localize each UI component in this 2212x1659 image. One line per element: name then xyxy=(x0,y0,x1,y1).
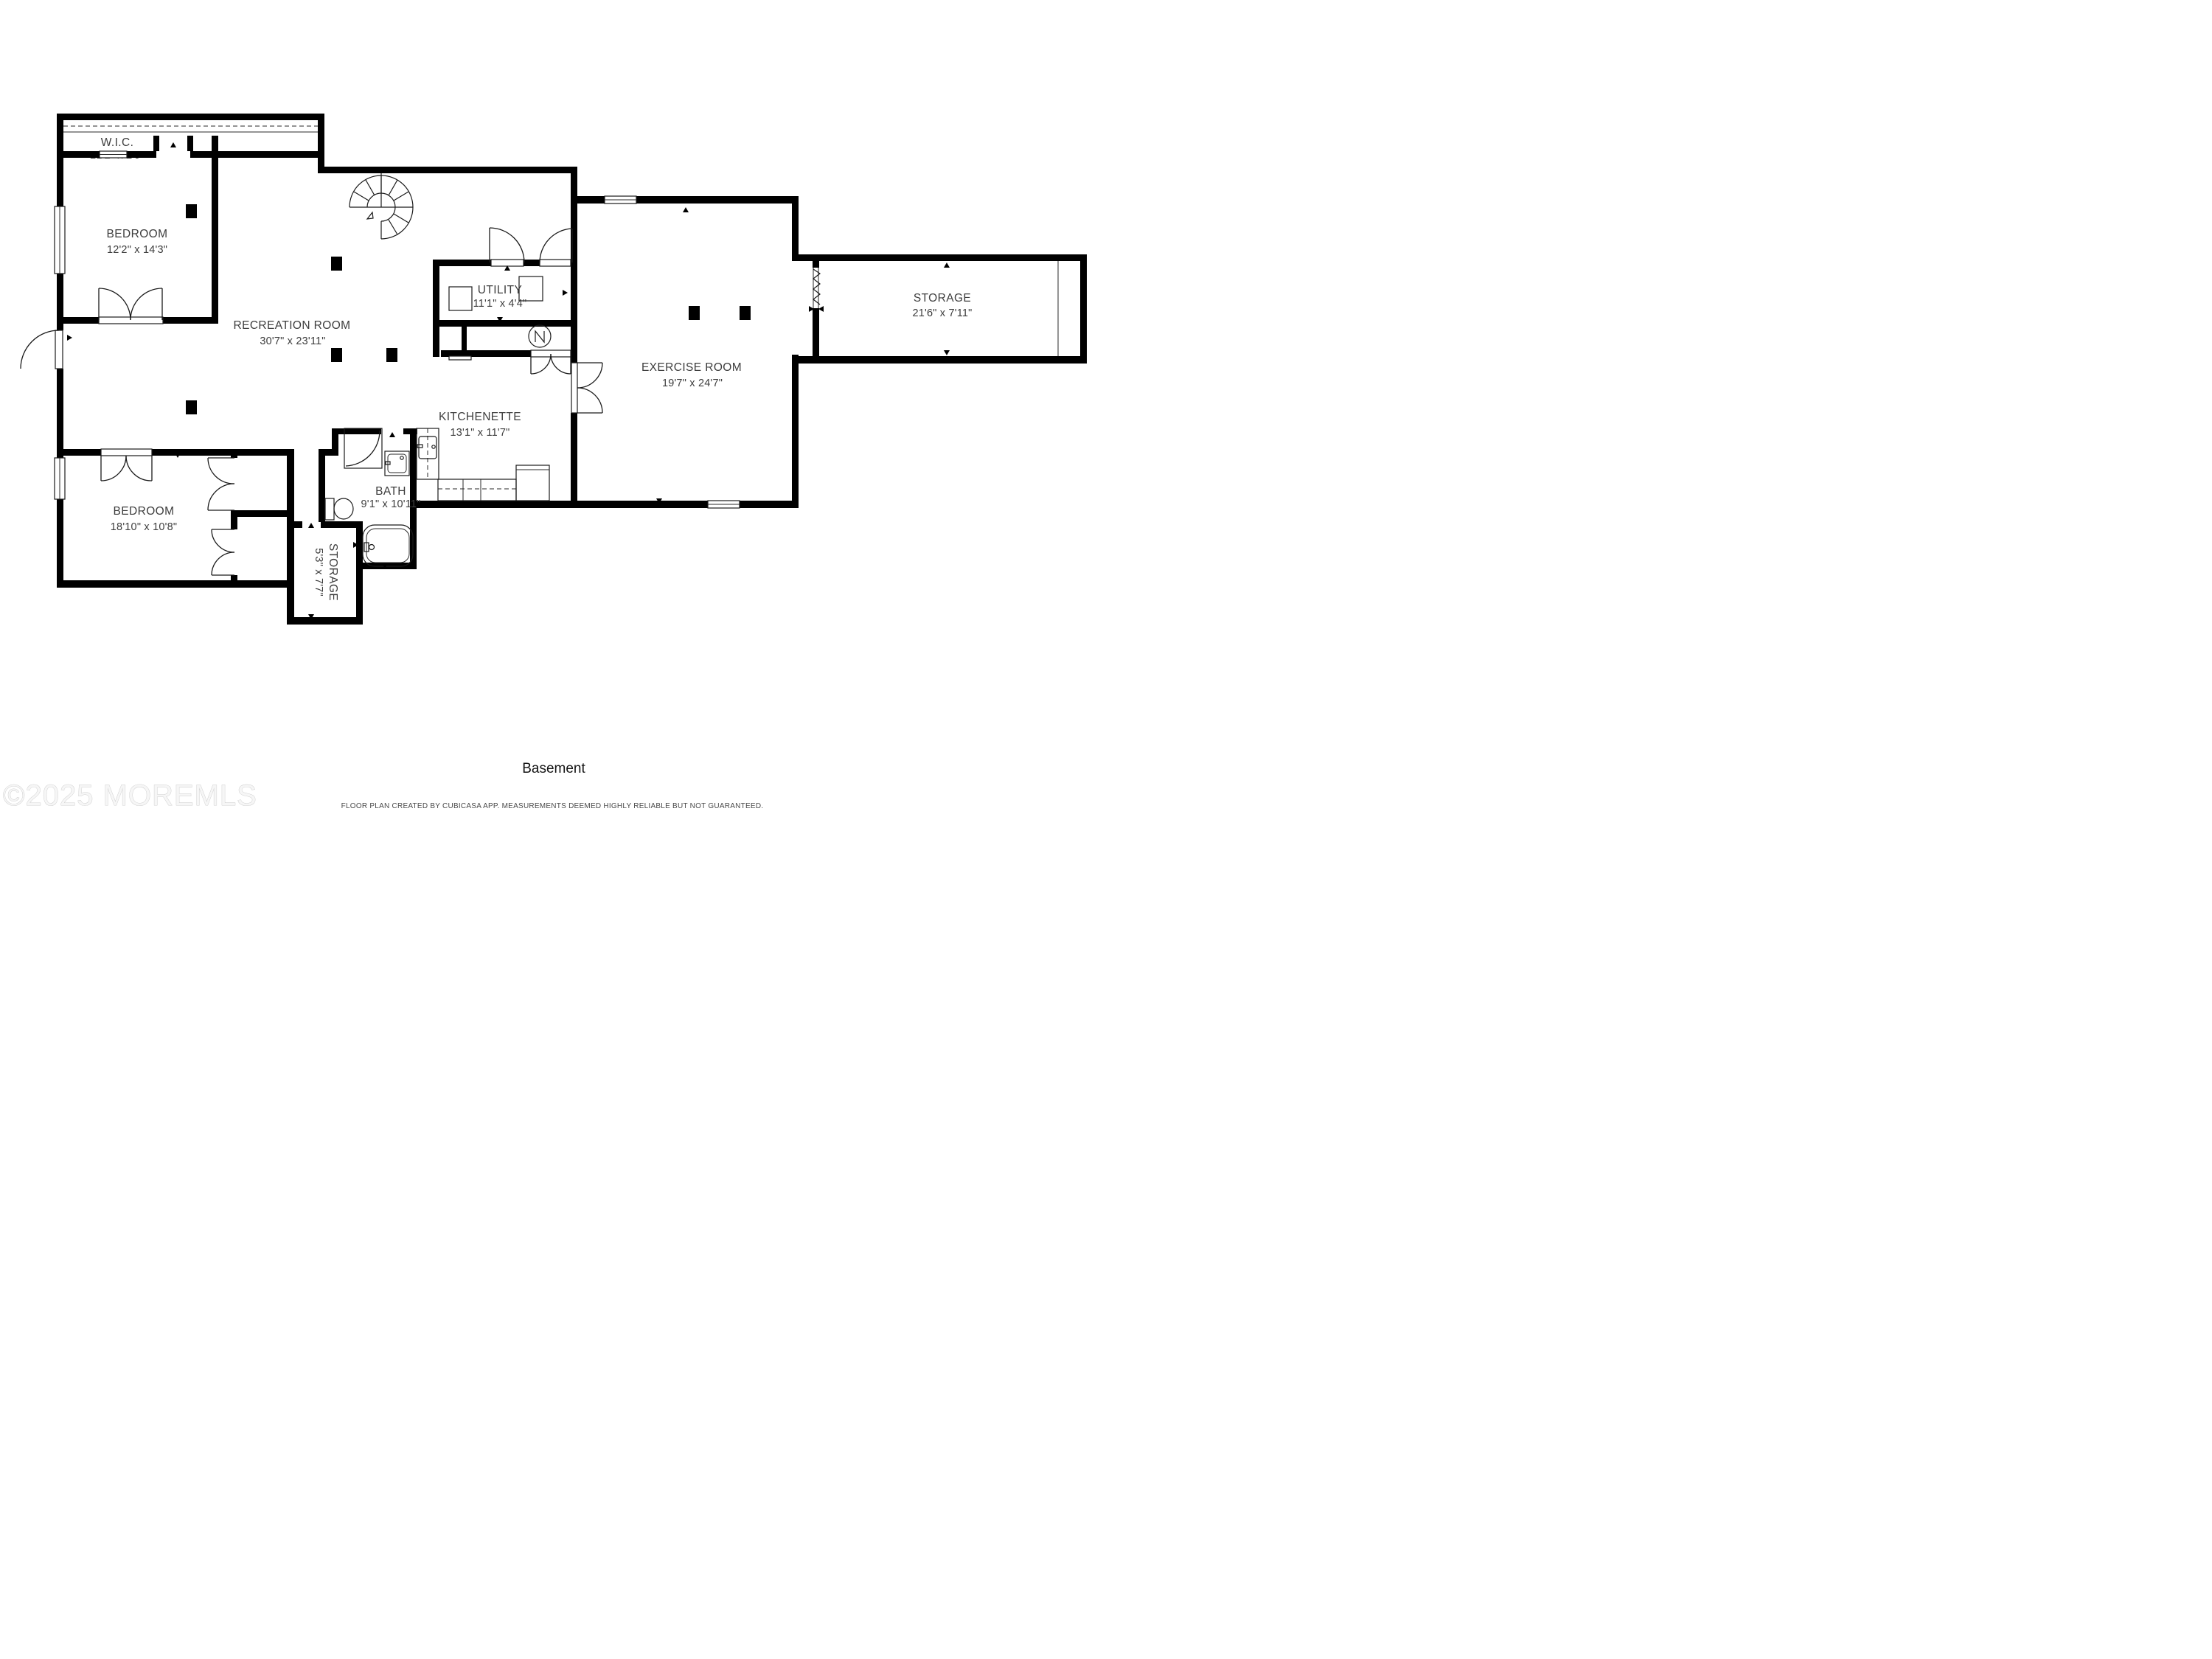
room-label-kitchenette: KITCHENETTE xyxy=(439,411,521,423)
room-dims-storage-small: 5'3" x 7'7" xyxy=(313,548,324,597)
wic-rod-and-shelf xyxy=(63,126,318,132)
bathtub-icon xyxy=(363,525,413,566)
room-label-storage-right: STORAGE xyxy=(914,292,971,305)
room-label-wic: W.I.C. xyxy=(101,136,134,149)
watermark: ©2025 MOREMLS xyxy=(3,779,257,812)
room-dims-bath: 9'1" x 10'11" xyxy=(361,498,420,510)
shower-icon xyxy=(344,428,382,468)
room-label-recreation: RECREATION ROOM xyxy=(234,319,351,332)
window-icon xyxy=(55,206,65,274)
room-labels: W.I.C. BEDROOM 12'2" x 14'3" RECREATION … xyxy=(101,136,973,601)
kitchenette-fixtures xyxy=(417,428,549,501)
opening-zigzag-icon xyxy=(813,268,820,308)
room-dims-kitchenette: 13'1" x 11'7" xyxy=(450,427,509,439)
stair-direction-arrow-icon xyxy=(367,212,373,219)
shelf-icon xyxy=(449,356,471,360)
closet-double-door-icon xyxy=(212,529,234,575)
water-heater-icon xyxy=(449,287,472,310)
room-label-bath: BATH xyxy=(375,485,406,498)
room-dims-exercise: 19'7" x 24'7" xyxy=(662,378,723,389)
room-label-storage-small: STORAGE xyxy=(327,543,339,601)
door-icons xyxy=(21,228,602,575)
room-label-exercise: EXERCISE ROOM xyxy=(641,361,742,374)
room-label-bedroom2: BEDROOM xyxy=(114,505,175,518)
closet-double-door-icon xyxy=(208,458,234,510)
page-title: Basement xyxy=(522,761,585,776)
double-door-icon xyxy=(101,449,152,481)
fridge-icon xyxy=(516,465,549,501)
floor-plan-svg: 21'2" x 2'9" xyxy=(0,0,1106,829)
double-door-icon xyxy=(531,350,571,374)
room-dims-bedroom2: 18'10" x 10'8" xyxy=(111,521,177,533)
toilet-icon xyxy=(325,498,353,520)
room-dims-storage-right: 21'6" x 7'11" xyxy=(912,307,972,319)
room-label-utility: UTILITY xyxy=(478,284,523,296)
door-icon xyxy=(540,229,572,266)
room-label-bedroom1: BEDROOM xyxy=(107,228,168,240)
room-dims-utility: 11'1" x 4'4" xyxy=(473,298,527,310)
door-icon xyxy=(490,228,524,266)
window-icon xyxy=(708,501,740,508)
room-label-storage-small-group: STORAGE 5'3" x 7'7" xyxy=(313,543,339,601)
window-icon xyxy=(605,196,636,204)
double-door-icon xyxy=(571,363,602,413)
footer-disclaimer: FLOOR PLAN CREATED BY CUBICASA APP. MEAS… xyxy=(341,802,764,810)
counter-icon xyxy=(438,479,516,501)
exterior-door-icon xyxy=(21,330,63,369)
opening-markers xyxy=(67,142,950,619)
double-door-icon xyxy=(99,288,163,324)
closet-slider-icon xyxy=(100,151,127,158)
window-icon xyxy=(55,458,65,499)
kitchen-sink-icon xyxy=(417,437,437,459)
spiral-staircase-icon xyxy=(349,173,413,239)
room-dims-recreation: 30'7" x 23'11" xyxy=(260,335,325,347)
floor-plan-page: 21'2" x 2'9" xyxy=(0,0,1106,829)
sump-pump-icon xyxy=(529,325,551,347)
bathroom-sink-icon xyxy=(385,451,409,476)
room-dims-bedroom1: 12'2" x 14'3" xyxy=(107,244,167,256)
